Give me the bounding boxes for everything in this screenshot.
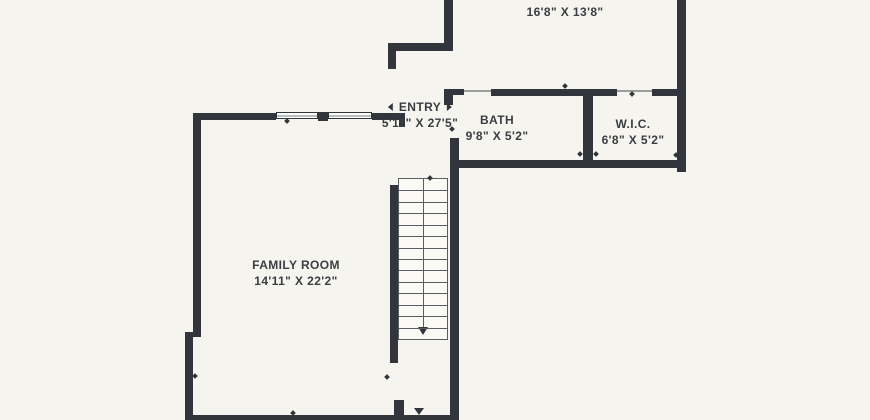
wall-segment (318, 112, 328, 121)
wall-segment (187, 415, 457, 420)
floor-plan: 16'8" X 13'8" ENTRY 5'11" X 27'5" BATH 9… (0, 0, 870, 420)
door-threshold (617, 90, 652, 92)
room-name: ENTRY (399, 99, 441, 115)
room-name: FAMILY ROOM (252, 257, 340, 273)
room-dimensions: 5'11" X 27'5" (382, 115, 458, 131)
stair-tread (399, 236, 447, 237)
plan-tick (384, 374, 390, 380)
room-name: BATH (480, 112, 514, 128)
stair-tread (399, 305, 447, 306)
stair-tread (399, 248, 447, 249)
plan-tick (562, 83, 568, 89)
door-threshold (464, 90, 491, 92)
stair-tread (399, 202, 447, 203)
stair-tread (399, 270, 447, 271)
wall-segment (652, 89, 686, 96)
dimension-arrow-right-icon (447, 103, 452, 111)
plan-tick (629, 91, 635, 97)
stair-tread (399, 259, 447, 260)
room-label-bath: BATH 9'8" X 5'2" (466, 112, 529, 144)
room-label-upper-room: 16'8" X 13'8" (526, 4, 603, 20)
door-marker-icon (414, 408, 424, 415)
wall-segment (677, 0, 686, 172)
window-pane-line (277, 115, 317, 116)
staircase (398, 178, 448, 340)
wall-segment (450, 160, 686, 168)
wall-segment (491, 89, 617, 96)
room-dimensions: 14'11" X 22'2" (254, 273, 337, 289)
plan-tick (577, 151, 583, 157)
window (276, 112, 318, 119)
wall-segment (583, 93, 593, 165)
wall-segment (193, 113, 201, 337)
room-label-entry: ENTRY 5'11" X 27'5" (382, 99, 458, 131)
window (328, 112, 372, 119)
stair-tread (399, 316, 447, 317)
stair-tread (399, 328, 447, 329)
room-dimensions: 16'8" X 13'8" (526, 4, 603, 20)
plan-tick (284, 118, 290, 124)
stair-tread (399, 213, 447, 214)
wall-segment (450, 138, 459, 420)
window-pane-line (329, 115, 371, 116)
stair-tread (399, 293, 447, 294)
wall-segment (388, 43, 453, 51)
plan-tick (593, 151, 599, 157)
wall-segment (193, 113, 276, 120)
dimension-arrow-left-icon (388, 103, 393, 111)
stair-tread (399, 282, 447, 283)
wall-segment (390, 185, 398, 363)
stair-tread (399, 190, 447, 191)
plan-tick (192, 373, 198, 379)
stair-tread (399, 225, 447, 226)
room-dimensions: 9'8" X 5'2" (466, 128, 529, 144)
wall-segment (444, 0, 453, 47)
room-name: W.I.C. (615, 116, 650, 132)
room-label-family-room: FAMILY ROOM 14'11" X 22'2" (252, 257, 340, 289)
room-label-wic: W.I.C. 6'8" X 5'2" (602, 116, 665, 148)
wall-segment (388, 43, 396, 69)
room-dimensions: 6'8" X 5'2" (602, 132, 665, 148)
